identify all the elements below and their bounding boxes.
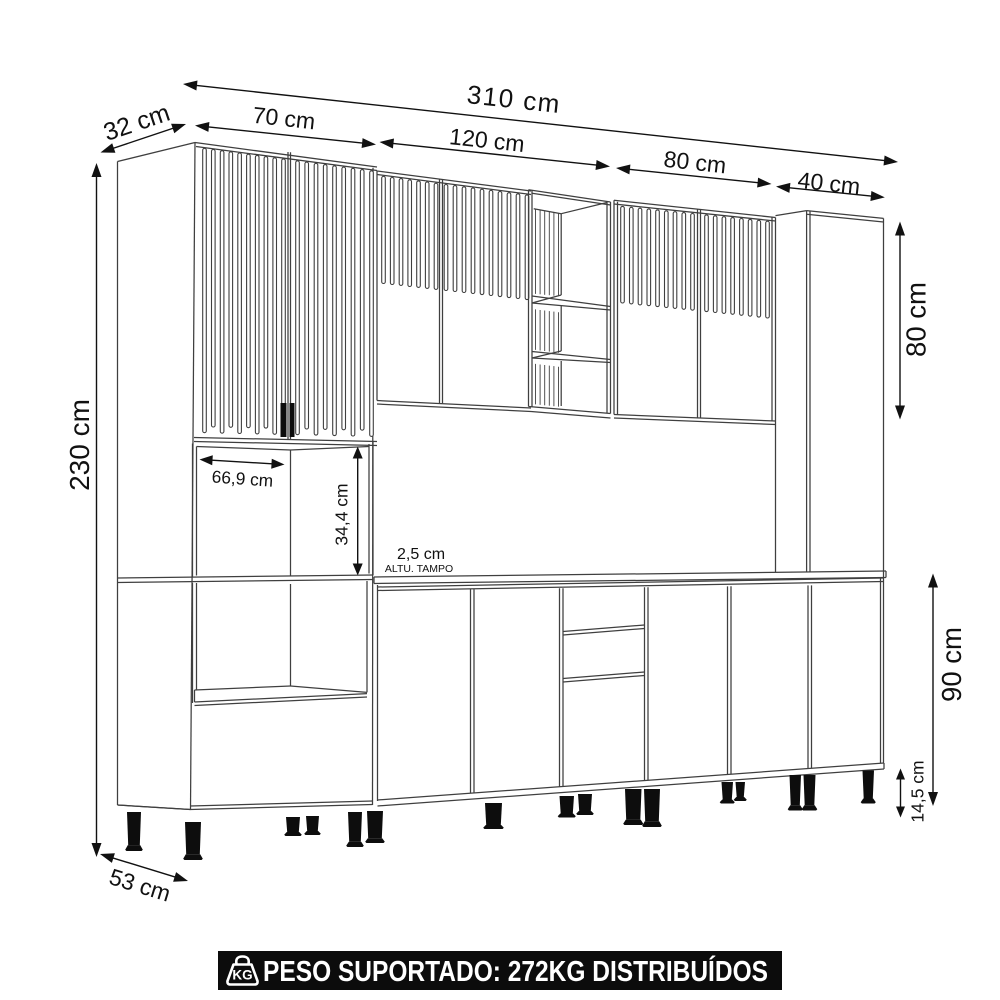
svg-text:KG: KG xyxy=(232,968,252,983)
svg-text:PESO SUPORTADO: 272KG DISTRIBU: PESO SUPORTADO: 272KG DISTRIBUÍDOS xyxy=(263,956,768,988)
svg-text:230 cm: 230 cm xyxy=(64,399,95,491)
svg-text:2,5 cm: 2,5 cm xyxy=(397,546,445,563)
svg-text:ALTU. TAMPO: ALTU. TAMPO xyxy=(385,563,453,575)
svg-text:14,5 cm: 14,5 cm xyxy=(908,760,928,822)
svg-text:66,9 cm: 66,9 cm xyxy=(211,466,274,490)
svg-text:80 cm: 80 cm xyxy=(901,282,932,357)
svg-text:34,4 cm: 34,4 cm xyxy=(332,483,352,545)
svg-text:90 cm: 90 cm xyxy=(936,627,967,702)
